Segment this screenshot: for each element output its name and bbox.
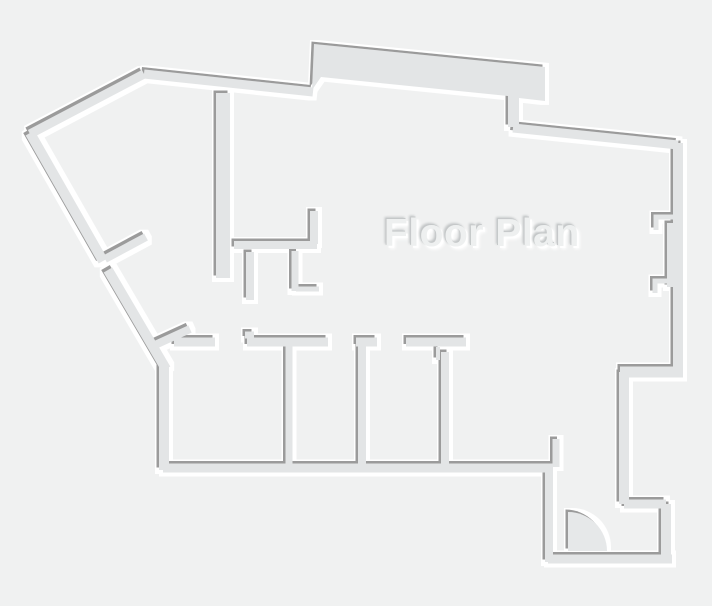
outer-nw-diagonal (30, 74, 144, 134)
outer-n-left (144, 74, 313, 92)
outer-sw-diagonal-lower (108, 270, 166, 369)
diagonal-door-leaf (105, 237, 146, 259)
entry-door-swing (568, 512, 607, 551)
roof-slab (312, 44, 545, 127)
floor-plan-stage: Floor Plan (0, 0, 712, 606)
outer-sw-diagonal-upper (30, 133, 103, 261)
outer-n-right (513, 128, 678, 145)
floor-plan-title: Floor Plan (384, 212, 580, 256)
walls-layer (30, 44, 683, 562)
floor-plan-canvas (0, 0, 712, 606)
